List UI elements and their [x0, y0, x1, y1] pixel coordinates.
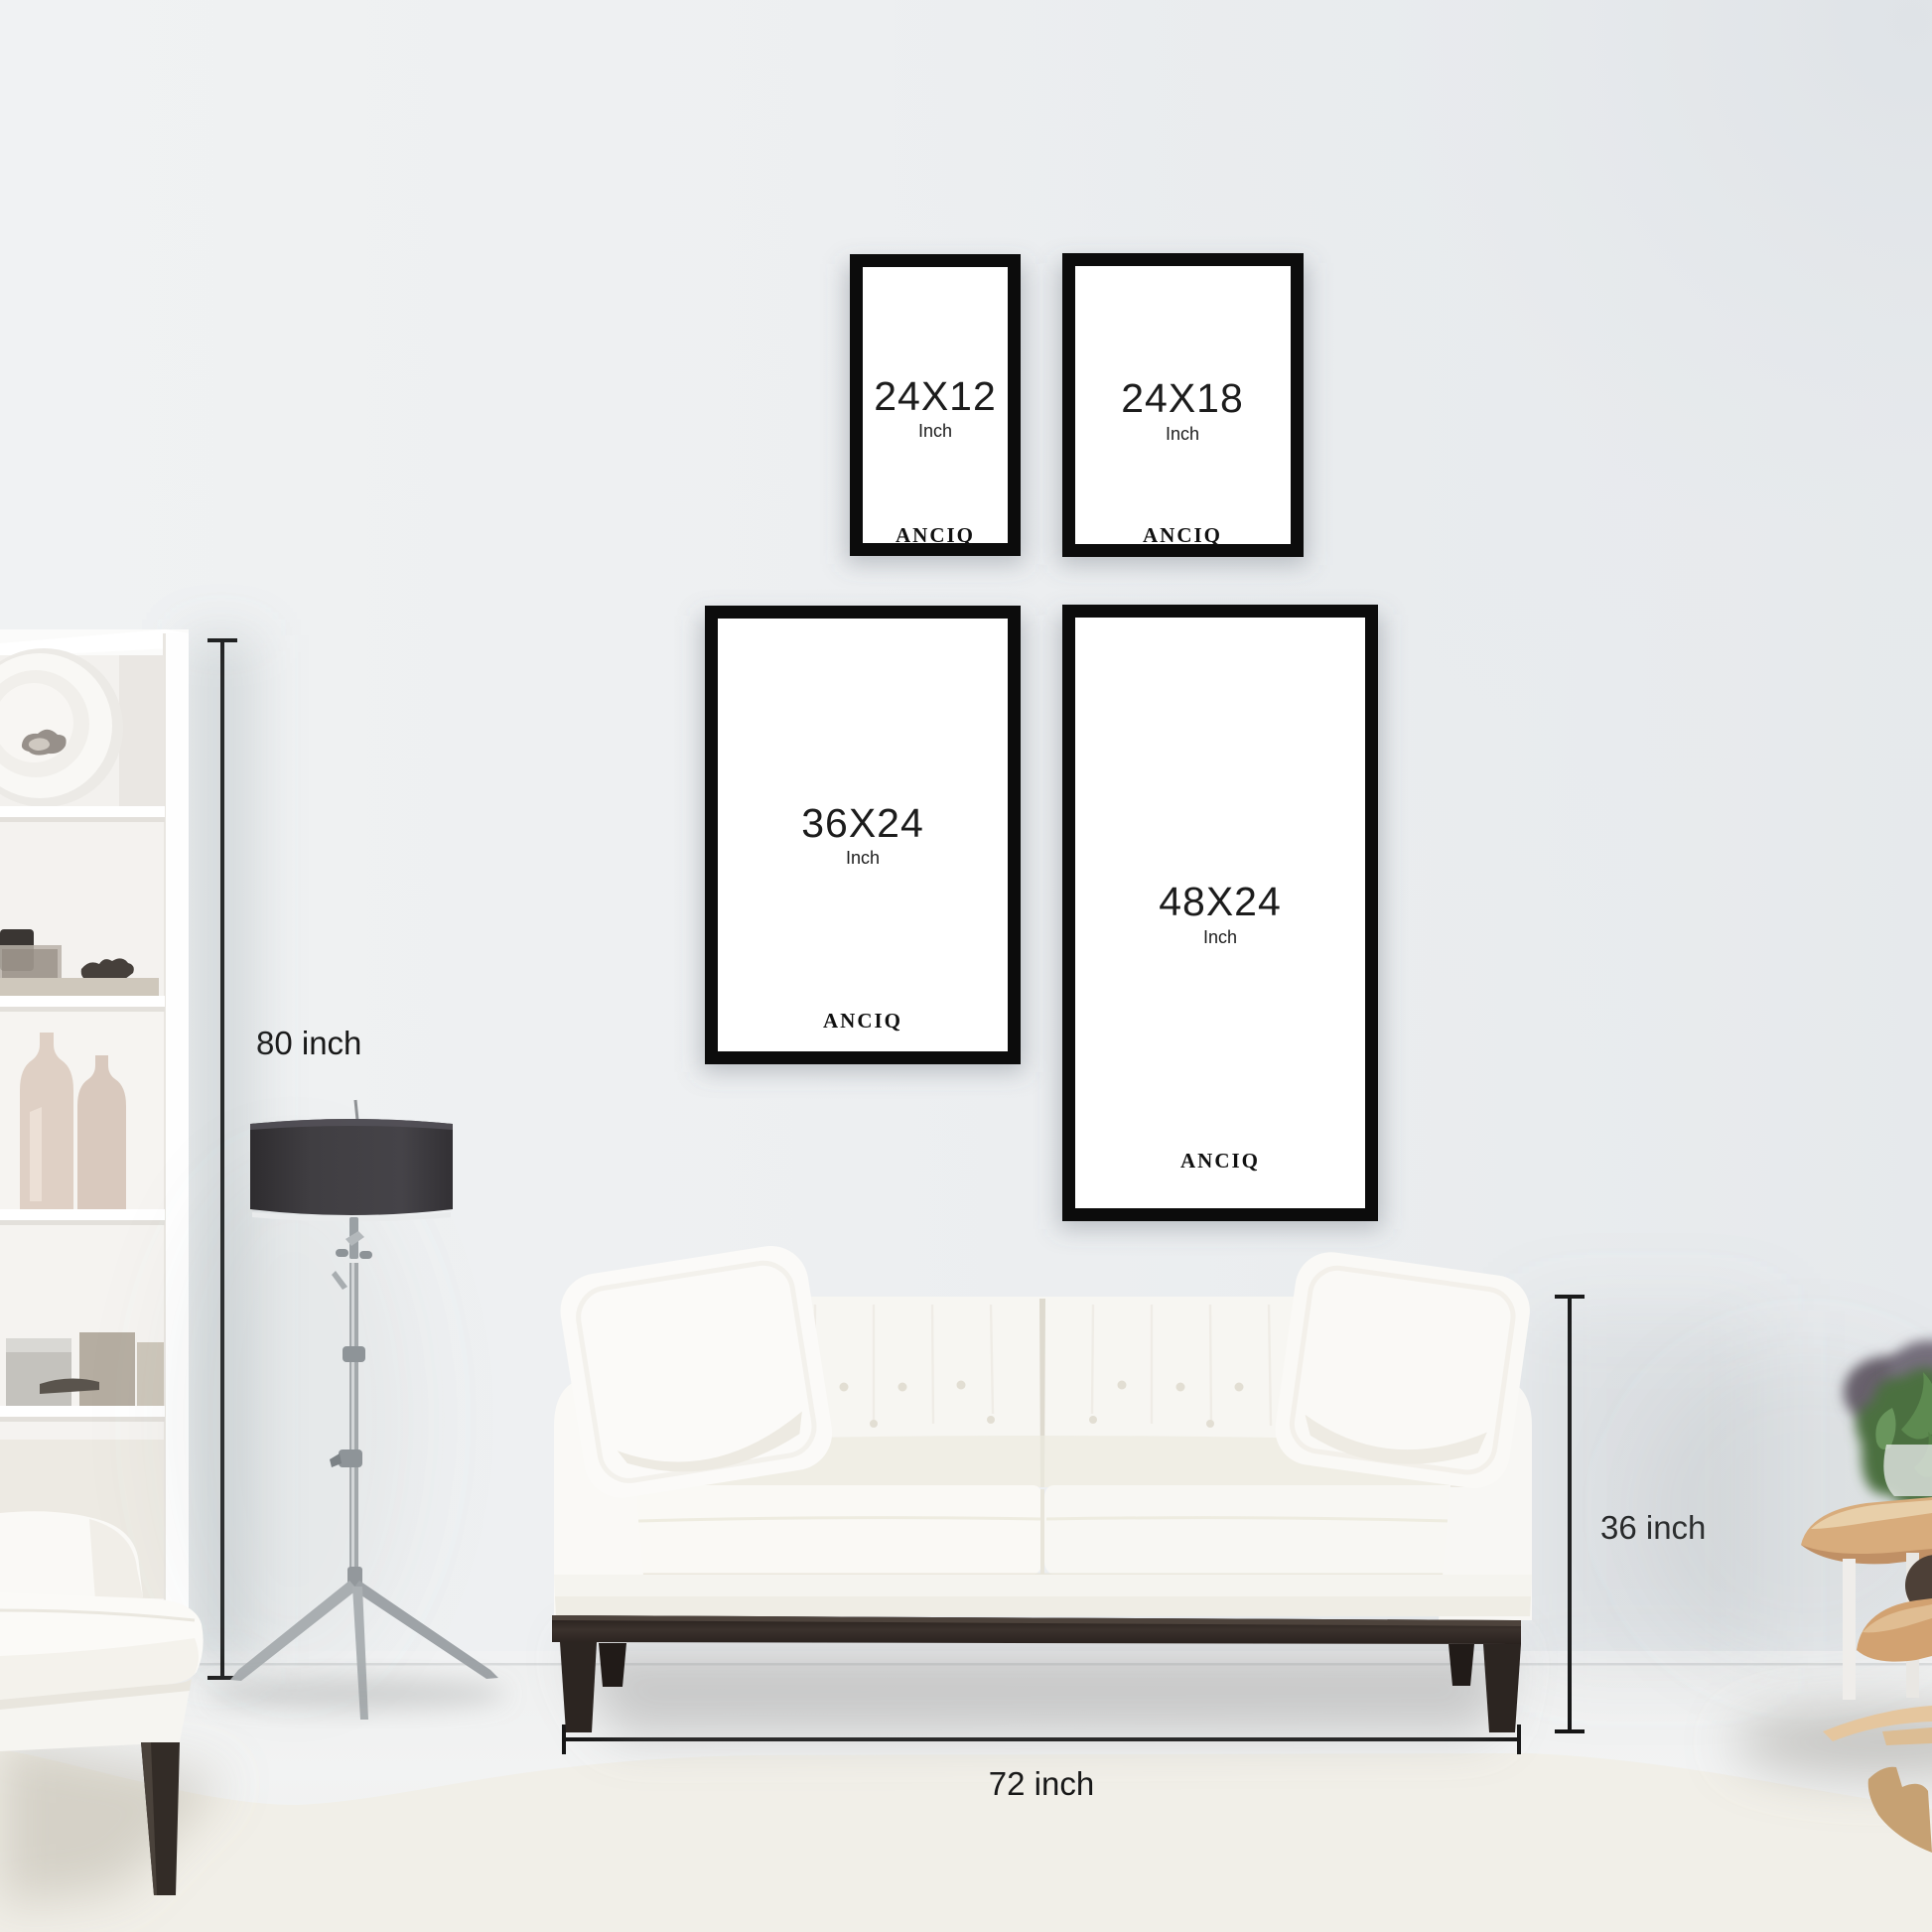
svg-text:ANCIQ: ANCIQ — [823, 1009, 902, 1033]
svg-text:Inch: Inch — [1203, 927, 1237, 947]
svg-text:ANCIQ: ANCIQ — [1143, 523, 1222, 547]
svg-text:72 inch: 72 inch — [989, 1765, 1094, 1802]
svg-text:Inch: Inch — [1166, 424, 1199, 444]
svg-text:24X18: 24X18 — [1121, 375, 1244, 421]
svg-text:ANCIQ: ANCIQ — [896, 523, 975, 547]
svg-text:Inch: Inch — [846, 848, 880, 868]
svg-text:36X24: 36X24 — [801, 800, 924, 846]
svg-text:48X24: 48X24 — [1159, 879, 1282, 924]
svg-text:ANCIQ: ANCIQ — [1180, 1149, 1260, 1173]
svg-text:Inch: Inch — [918, 421, 952, 441]
svg-text:80 inch: 80 inch — [256, 1025, 361, 1061]
svg-text:24X12: 24X12 — [874, 373, 997, 419]
